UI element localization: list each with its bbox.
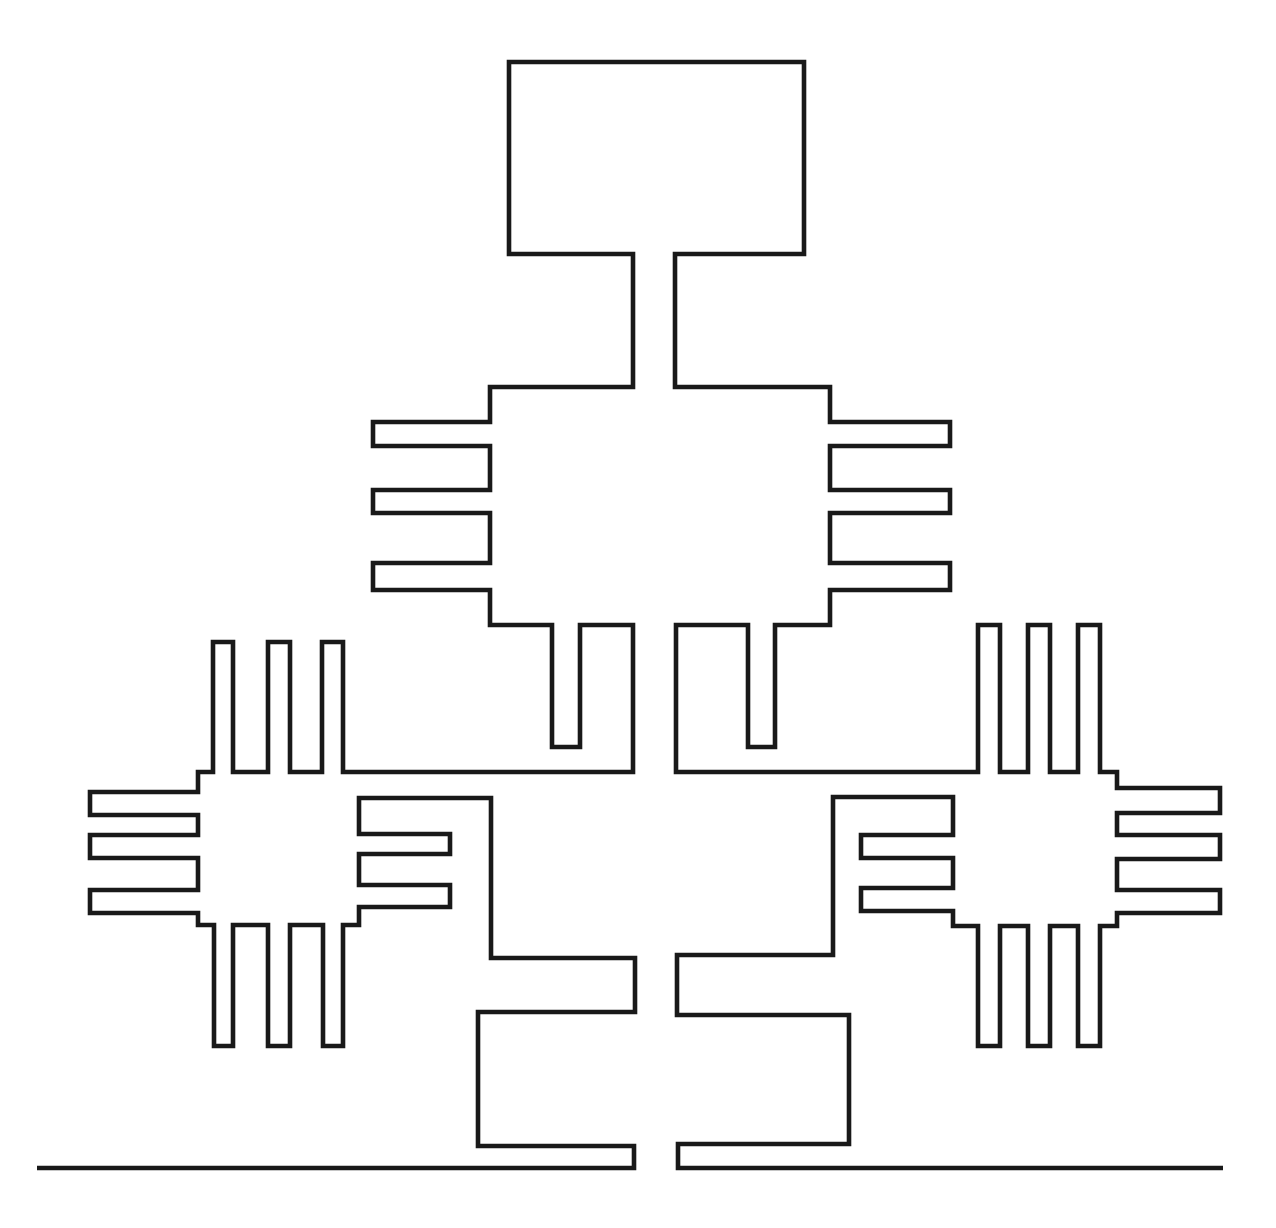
patent-figure-page (0, 0, 1276, 1228)
structure-and-ground-outline (37, 62, 1223, 1168)
fractal-comb-structure-drawing (0, 0, 1276, 1228)
